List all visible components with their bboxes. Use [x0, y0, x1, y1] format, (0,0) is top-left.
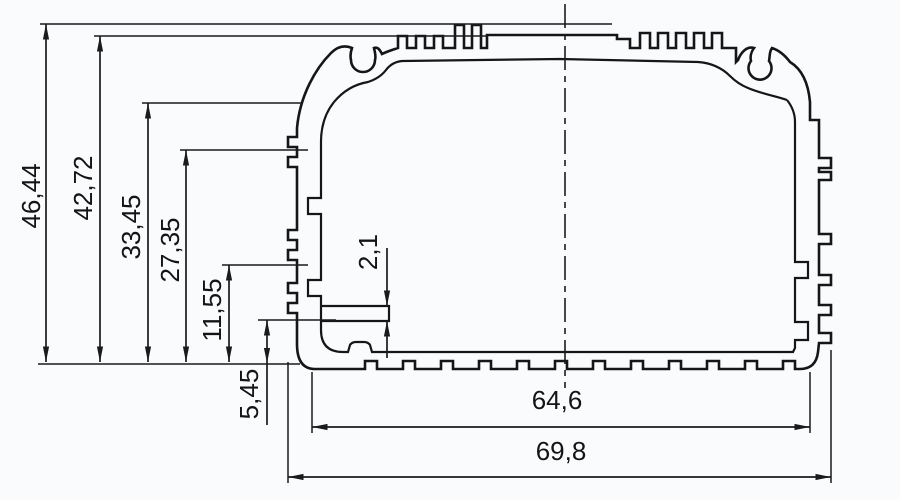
dimension-label: 27,35: [155, 217, 185, 282]
dimension-label: 64,6: [532, 385, 583, 415]
dimension-label: 5,45: [234, 369, 264, 420]
dimension-arrow: [264, 348, 270, 363]
dimension-label: 2,1: [353, 234, 383, 270]
profile-inner-walls: [308, 100, 808, 352]
dimension-label: 33,45: [116, 194, 146, 259]
profile-geometry: [288, 25, 831, 369]
profile-inner-ceiling: [321, 59, 787, 142]
pcb-ledge-fin: [321, 306, 389, 321]
dimension-overall-width: 69,8: [288, 350, 831, 483]
extrusion-profile-drawing: 46,44 42,72 33,45 27,35 11,55 5,45 2,1 6…: [0, 0, 900, 500]
dimension-label: 46,44: [16, 163, 46, 228]
dimension-label: 42,72: [68, 155, 98, 220]
dimension-label: 69,8: [536, 436, 587, 466]
dimension-label: 11,55: [197, 278, 227, 341]
profile-outer-contour: [288, 25, 831, 369]
dimension-mid-step-height: 27,35: [155, 150, 308, 362]
drawing-canvas: 46,44 42,72 33,45 27,35 11,55 5,45 2,1 6…: [0, 0, 900, 500]
dimension-ledge-thickness: 2,1: [353, 234, 387, 358]
dimension-inner-width: 64,6: [312, 372, 810, 433]
